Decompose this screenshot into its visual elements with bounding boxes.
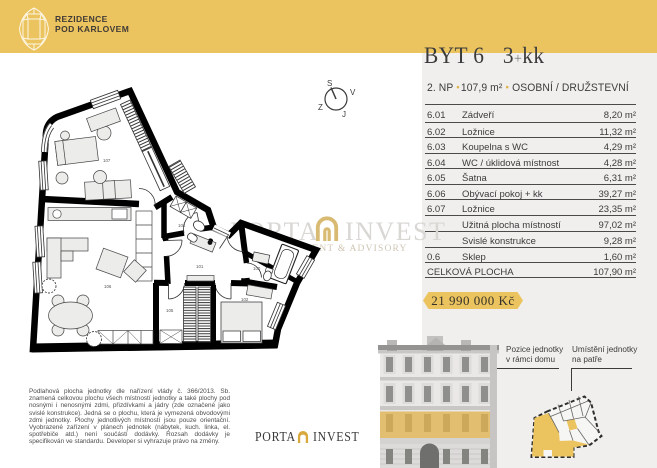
svg-text:V: V bbox=[350, 88, 356, 97]
svg-text:107: 107 bbox=[103, 158, 111, 163]
svg-text:101: 101 bbox=[196, 264, 204, 269]
svg-text:105: 105 bbox=[166, 308, 174, 313]
svg-text:S: S bbox=[327, 79, 332, 88]
svg-text:102: 102 bbox=[241, 297, 249, 302]
svg-text:J: J bbox=[342, 110, 346, 119]
svg-text:100: 100 bbox=[253, 266, 261, 271]
svg-text:106: 106 bbox=[104, 284, 112, 289]
svg-text:Z: Z bbox=[318, 103, 323, 112]
svg-text:104: 104 bbox=[178, 223, 186, 228]
